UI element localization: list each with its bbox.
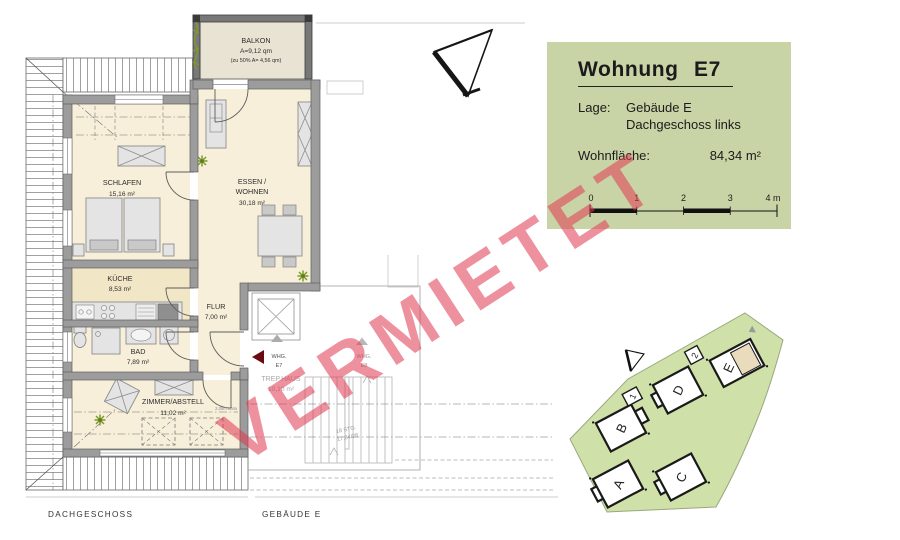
location-label: Lage: (578, 99, 626, 133)
footer-floor-label: DACHGESCHOSS (48, 510, 133, 519)
whg-e8-number: E8 (361, 363, 368, 369)
sheet-footer: DACHGESCHOSS GEBÄUDE E (26, 497, 558, 519)
room-label-essen-1: ESSEN / (238, 177, 266, 186)
floor-plan-drawing: WHG. E7 WHG. E8 BALKON A=9,12 qm (zu 50%… (0, 0, 560, 540)
room-area-essen: 30,18 m² (239, 200, 266, 207)
room-label-trephaus: TREP.HAUS (261, 376, 300, 383)
room-label-flur: FLUR (207, 302, 226, 311)
site-plan: A B C D E 1 (565, 300, 900, 540)
scale-tick-3: 3 (728, 193, 733, 203)
room-label-essen-2: WOHNEN (236, 187, 269, 196)
scale-tick-2: 2 (681, 193, 686, 203)
room-label-balkon: BALKON (241, 36, 270, 45)
site-north-arrow-icon (626, 350, 644, 371)
living-area-row: Wohnfläche: 84,34 m² (578, 147, 791, 164)
room-area-kueche: 8,53 m² (109, 286, 132, 293)
location-value: Gebäude E Dachgeschoss links (626, 99, 741, 133)
room-label-zimmer: ZIMMER/ABSTELL (142, 397, 204, 406)
room-note-balkon: (zu 50% A= 4,56 qm) (231, 58, 282, 64)
scale-tick-4: 4 m (765, 193, 780, 203)
room-area-bad: 7,89 m² (127, 359, 150, 366)
room-area-schlafen: 15,16 m² (109, 191, 136, 198)
whg-e7-number: E7 (276, 363, 283, 369)
floorplan-sheet: WHG. E7 WHG. E8 BALKON A=9,12 qm (zu 50%… (0, 0, 900, 540)
room-area-zimmer: 11,02 m² (160, 410, 186, 417)
room-label-schlafen: SCHLAFEN (103, 178, 141, 187)
living-area-label: Wohnfläche: (578, 147, 650, 164)
staircase (305, 376, 392, 463)
entry-arrow-e8-icon (356, 338, 368, 346)
whg-e8-label: WHG. (357, 354, 372, 360)
scale-bar: 0 1 2 3 4 m (587, 191, 783, 221)
north-arrow-icon (434, 30, 492, 96)
plant-icon (298, 271, 309, 282)
apartment-title: Wohnung E7 (578, 58, 733, 87)
room-label-bad: BAD (131, 347, 146, 356)
whg-e7-label: WHG. (272, 354, 287, 360)
living-area-value: 84,34 m² (710, 147, 761, 164)
location-floor: Dachgeschoss links (626, 116, 741, 133)
location-row: Lage: Gebäude E Dachgeschoss links (578, 99, 791, 133)
wardrobe-schlafen (118, 146, 165, 166)
scale-tick-0: 0 (588, 193, 593, 203)
room-area-trephaus: 10,10 m² (268, 386, 295, 393)
lima-annotation: 2,00m LiMa (215, 406, 238, 411)
entry-arrow-e7-icon (252, 350, 264, 364)
room-label-kueche: KÜCHE (107, 274, 132, 283)
footer-building-label: GEBÄUDE E (262, 509, 321, 519)
scale-tick-1: 1 (634, 193, 639, 203)
apartment-info-box: Wohnung E7 Lage: Gebäude E Dachgeschoss … (547, 42, 791, 229)
location-building: Gebäude E (626, 99, 741, 116)
room-area-balkon: A=9,12 qm (240, 48, 273, 55)
room-area-flur: 7,00 m² (205, 314, 228, 321)
kitchen-counter (72, 302, 182, 322)
plant-icon (95, 415, 106, 426)
